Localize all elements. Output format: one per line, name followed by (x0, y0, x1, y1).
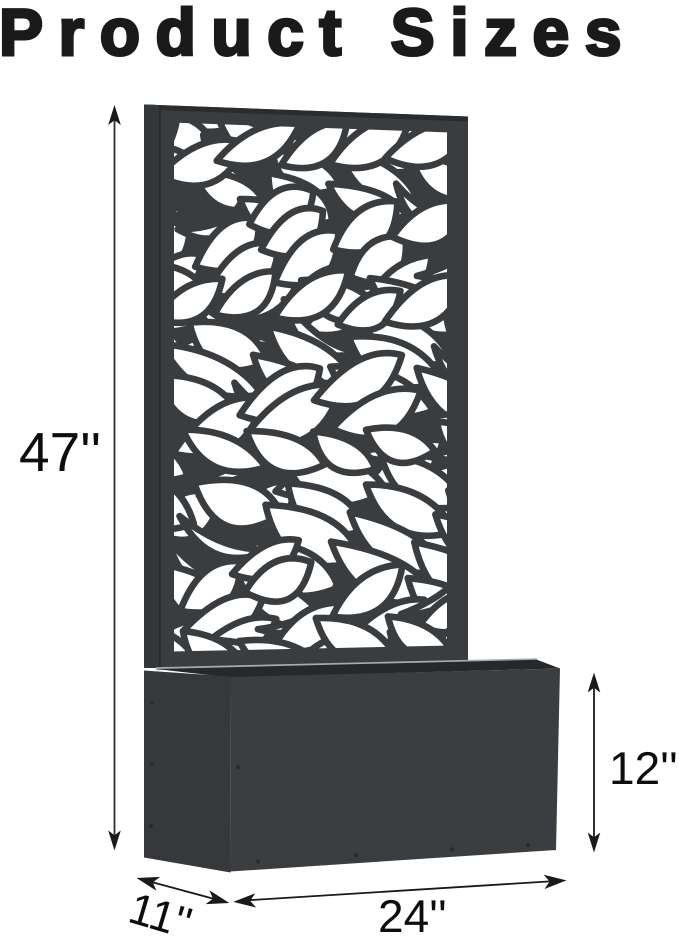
svg-text:12'': 12'' (609, 742, 678, 794)
svg-text:47'': 47'' (19, 421, 101, 483)
svg-text:24'': 24'' (378, 890, 447, 936)
